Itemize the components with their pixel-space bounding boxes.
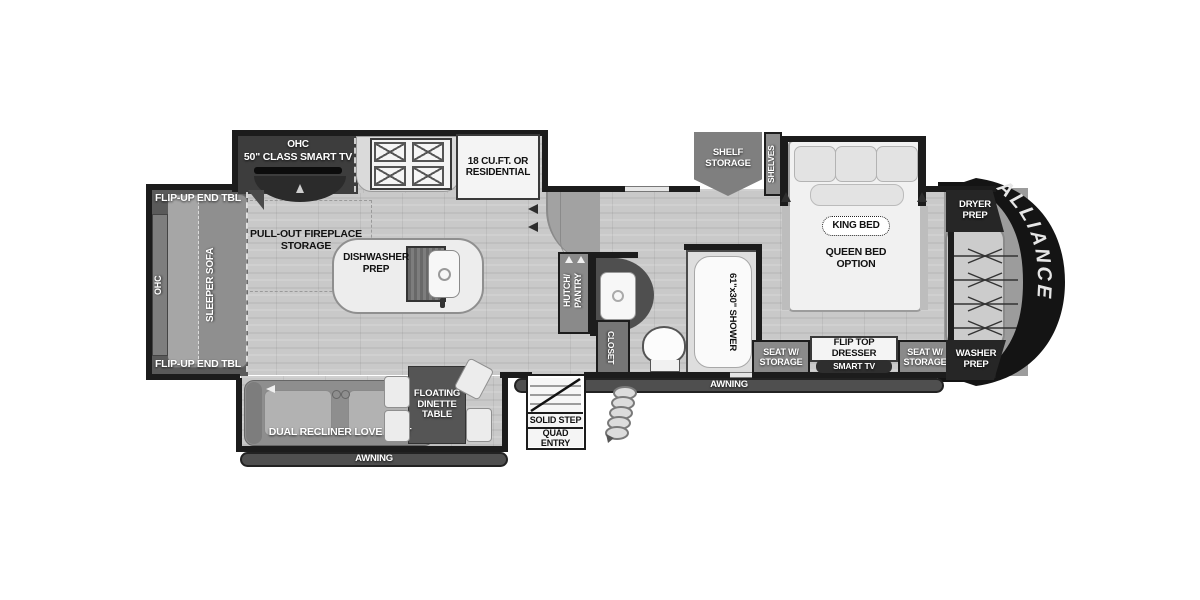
dinette-table-label: FLOATING DINETTE TABLE [411,389,463,422]
tv-50-label: 50" CLASS SMART TV [236,151,360,163]
hutch-pantry-label: HUTCH/ PANTRY [562,258,586,324]
king-bed-tag: KING BED [822,216,890,236]
dryer-prep-label: DRYER PREP [952,200,998,222]
shelves-label: SHELVES [767,138,777,190]
toilet [642,326,686,364]
toilet-base [650,360,680,372]
awning-right-label: AWNING [710,380,748,391]
queen-bed-option-label: QUEEN BED OPTION [806,246,906,270]
floorplan: ALLIANCE FLIP-UP END TBL OHC SLEEPER SOF… [0,0,1200,600]
front-wardrobe [946,226,1004,348]
corner-speaker-icon [248,190,264,210]
bedroom-smart-tv-bar: SMART TV [816,360,892,373]
sofa-backrest [168,196,199,364]
awning-bar-left: AWNING [240,452,508,467]
slide-boundary [246,192,248,372]
pillow [835,146,877,182]
dinette-chair [466,408,492,442]
bath-sink-drain-icon [612,290,624,302]
faucet-icon [440,298,445,308]
flip-top-dresser-label: FLIP TOP DRESSER [812,338,896,360]
nightstand-left [782,206,790,310]
awning-left-label: AWNING [355,454,393,465]
bed-bolster [810,184,904,206]
sink-drain-icon [438,268,451,281]
vent-icon [577,256,585,263]
shower-label: 61"x30" SHOWER [706,268,738,356]
vent-icon [565,256,573,263]
refrigerator: 18 CU.FT. OR RESIDENTIAL [456,134,540,200]
closet-label: CLOSET [605,326,615,370]
seat-with-storage-left-label: SEAT W/ STORAGE [755,347,807,368]
nightstand-right [920,206,928,310]
washer-prep-label: WASHER PREP [952,349,1000,371]
vent-icon [917,192,927,202]
cupholder-icon [332,390,341,399]
dinette-chair [384,410,410,442]
cupholder-icon [341,390,350,399]
ohc-tv-label: OHC [238,139,358,151]
step-marker-icon [528,204,538,214]
step-marker-icon [528,222,538,232]
shelf-storage-label: SHELF STORAGE [694,148,762,170]
power-cord-icon [598,384,648,446]
entry-steps: SOLID STEP QUAD ENTRY [526,374,586,450]
pillow [794,146,836,182]
seat-with-storage-right-label: SEAT W/ STORAGE [900,347,950,368]
vent-icon [781,192,791,202]
seat-with-storage-left: SEAT W/ STORAGE [752,340,810,374]
sleeper-sofa-label: SLEEPER SOFA [205,235,217,335]
fireplace-arrow-icon [296,184,304,193]
quad-entry-band: QUAD ENTRY [528,429,583,447]
solid-step-band: SOLID STEP [528,412,583,429]
flip-top-dresser: FLIP TOP DRESSER [810,336,898,362]
bedroom-smart-tv-label: SMART TV [833,362,875,372]
ohc-sofa-label: OHC [153,255,163,315]
dishwasher-prep-label: DISHWASHER PREP [340,252,412,275]
tv-bar [254,167,342,174]
step-diagonal [528,376,583,414]
solid-step-label: SOLID STEP [530,415,582,425]
seat-with-storage-right: SEAT W/ STORAGE [898,340,952,374]
window [625,186,669,192]
recline-arrow-icon [266,385,275,393]
fireplace-storage-label: PULL-OUT FIREPLACE STORAGE [240,228,372,252]
dinette-chair [384,376,410,408]
pillow [876,146,918,182]
flip-up-end-table-bottom-label: FLIP-UP END TBL [148,358,248,370]
king-bed-label: KING BED [832,220,879,232]
flip-up-end-table-top-label: FLIP-UP END TBL [148,192,248,204]
quad-entry-label: QUAD ENTRY [528,428,583,449]
refrigerator-label: 18 CU.FT. OR RESIDENTIAL [461,156,535,179]
